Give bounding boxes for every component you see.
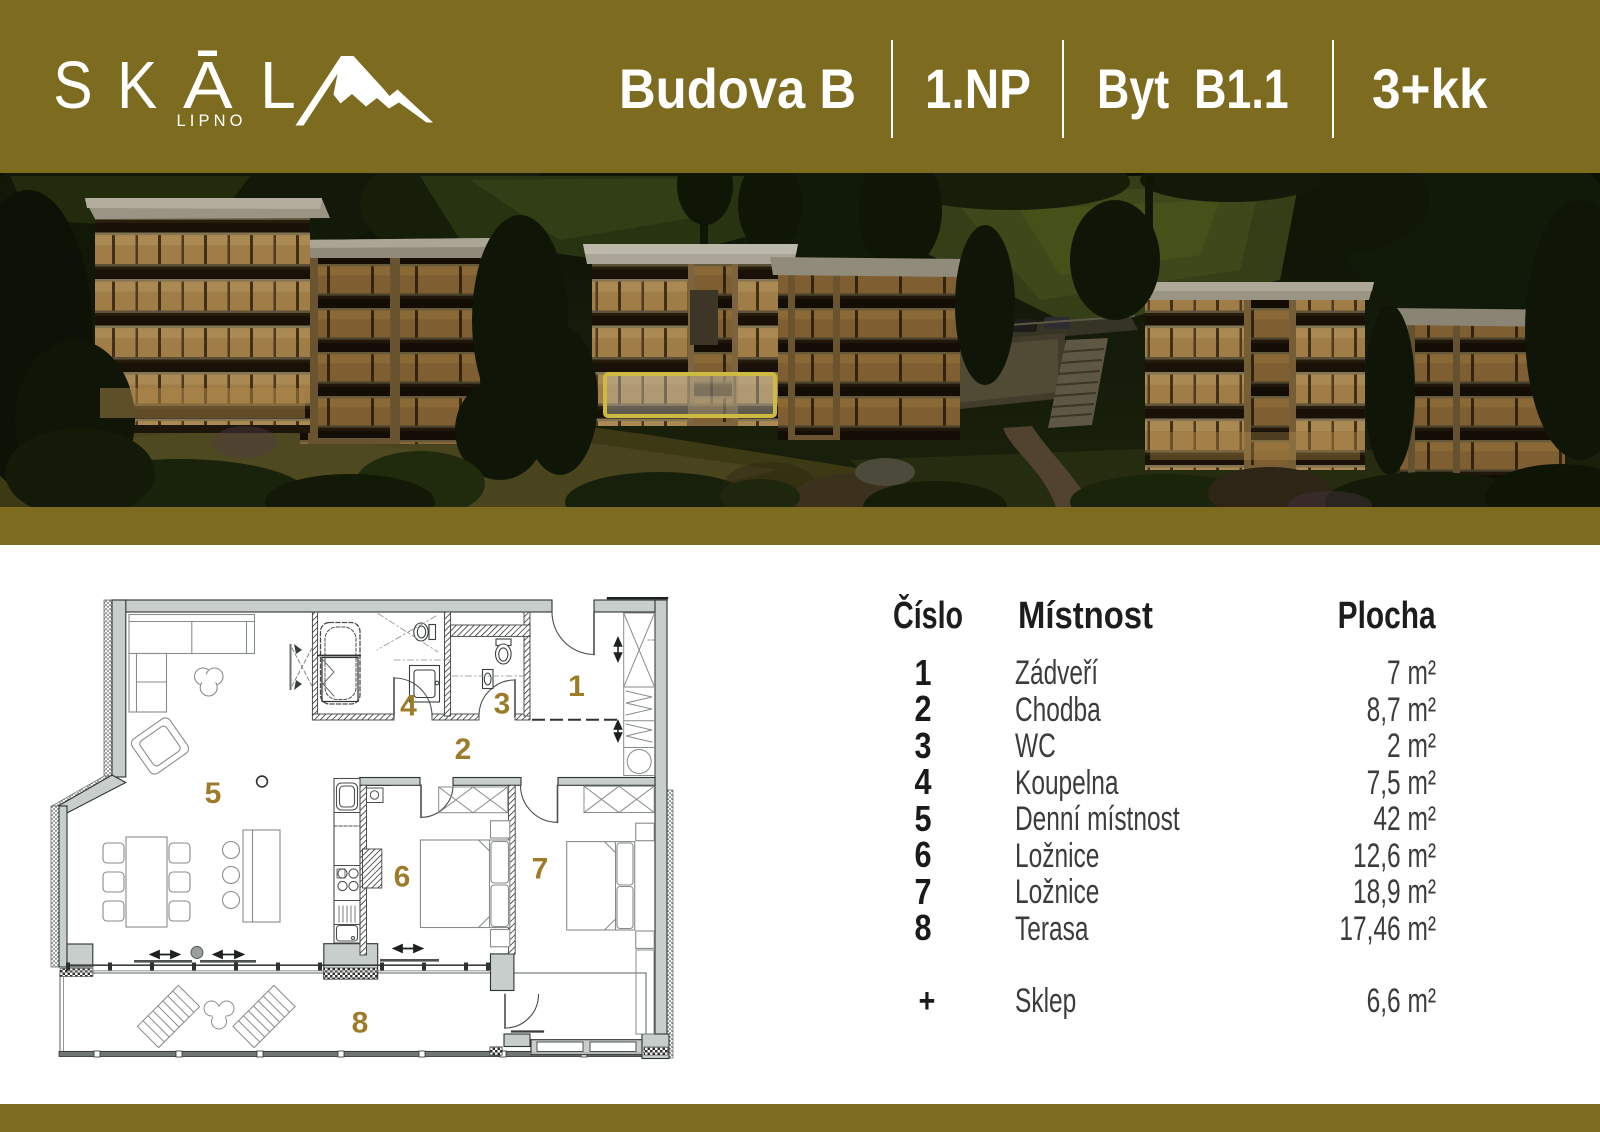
- svg-text:5: 5: [205, 777, 222, 810]
- svg-text:K: K: [117, 47, 157, 123]
- svg-text:8: 8: [352, 1007, 369, 1040]
- svg-text:LIPNO: LIPNO: [177, 112, 247, 130]
- svg-text:4: 4: [400, 690, 417, 723]
- svg-text:1: 1: [568, 670, 585, 703]
- svg-text:6: 6: [394, 861, 411, 894]
- svg-text:A: A: [183, 47, 233, 122]
- svg-text:S: S: [53, 49, 92, 123]
- svg-text:7: 7: [532, 853, 549, 886]
- svg-text:2: 2: [455, 733, 472, 766]
- svg-text:L: L: [260, 48, 296, 122]
- svg-text:3: 3: [494, 688, 511, 721]
